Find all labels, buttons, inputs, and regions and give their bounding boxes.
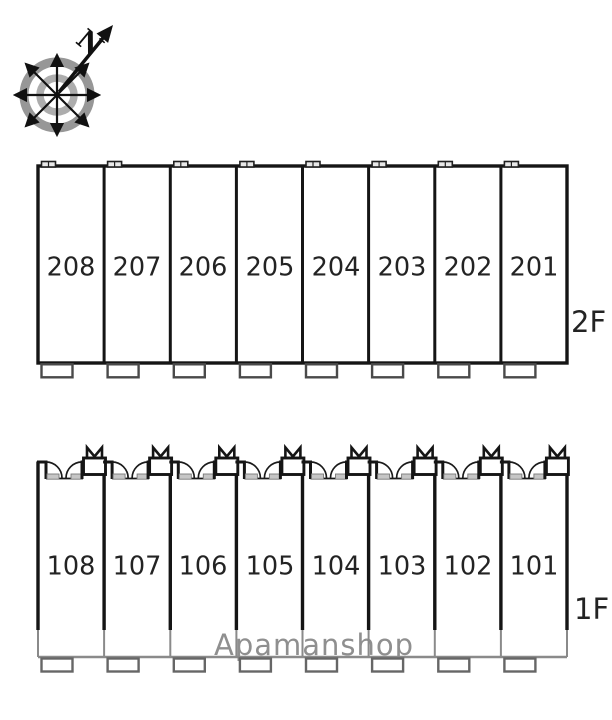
floor-2f-label: 2F xyxy=(571,305,606,339)
floor-1f-lower-walls xyxy=(38,630,567,657)
compass-icon: N xyxy=(15,24,113,135)
floor-2f-unit-walls xyxy=(104,166,501,363)
room-102-label: 102 xyxy=(444,552,493,582)
floor-1f-label: 1F xyxy=(574,592,609,626)
room-104-label: 104 xyxy=(312,552,361,582)
floor-1f-entrances xyxy=(37,448,568,480)
room-107-label: 107 xyxy=(113,552,162,582)
room-205-label: 205 xyxy=(246,253,295,283)
floorplan-page: N Apamanshop 208 207 206 205 204 203 202… xyxy=(0,0,612,720)
room-201-label: 201 xyxy=(510,253,559,283)
north-label: N xyxy=(70,24,109,64)
compass-star xyxy=(15,55,99,135)
room-106-label: 106 xyxy=(179,552,228,582)
floorplan-canvas: N Apamanshop 208 207 206 205 204 203 202… xyxy=(0,0,612,720)
room-101-label: 101 xyxy=(510,552,559,582)
room-208-label: 208 xyxy=(47,253,96,283)
floor-2f-windows xyxy=(42,364,536,377)
room-203-label: 203 xyxy=(378,253,427,283)
room-206-label: 206 xyxy=(179,253,228,283)
room-207-label: 207 xyxy=(113,253,162,283)
floor-1f-unit-walls xyxy=(38,462,567,631)
room-103-label: 103 xyxy=(378,552,427,582)
floor-2f-plan: 208 207 206 205 204 203 202 201 2F xyxy=(38,162,606,378)
room-204-label: 204 xyxy=(312,253,361,283)
room-202-label: 202 xyxy=(444,253,493,283)
room-105-label: 105 xyxy=(246,552,295,582)
room-108-label: 108 xyxy=(47,552,96,582)
